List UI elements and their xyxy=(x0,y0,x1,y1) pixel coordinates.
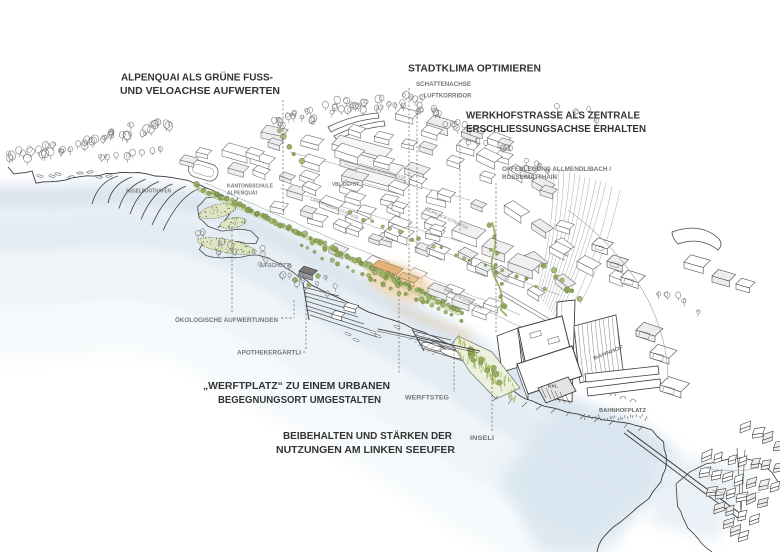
svg-text:OFFENLEGUNG ALLMENDLIBACH /: OFFENLEGUNG ALLMENDLIBACH / xyxy=(502,166,611,173)
svg-text:VBL-DEPOT: VBL-DEPOT xyxy=(332,182,359,188)
svg-text:WERFTSTEG: WERFTSTEG xyxy=(405,395,449,402)
svg-text:SCHATTENACHSE: SCHATTENACHSE xyxy=(416,81,472,88)
svg-text:STADTKLIMA OPTIMIEREN: STADTKLIMA OPTIMIEREN xyxy=(408,63,541,75)
svg-text:ERSCHLIESSUNGSACHSE ERHALTEN: ERSCHLIESSUNGSACHSE ERHALTEN xyxy=(466,123,646,135)
svg-text:INSELI: INSELI xyxy=(470,435,494,442)
svg-text:RÖSSLIMATTHAIN: RÖSSLIMATTHAIN xyxy=(502,172,557,181)
svg-text:UFSCHÖTTI: UFSCHÖTTI xyxy=(261,262,292,269)
svg-text:BAHNHOFPLATZ: BAHNHOFPLATZ xyxy=(599,408,646,414)
svg-text:UND VELOACHSE AUFWERTEN: UND VELOACHSE AUFWERTEN xyxy=(120,85,280,97)
svg-text:„WERFTPLATZ“ ZU EINEM URBANEN: „WERFTPLATZ“ ZU EINEM URBANEN xyxy=(203,380,390,392)
svg-text:BEIBEHALTEN UND STÄRKEN DER: BEIBEHALTEN UND STÄRKEN DER xyxy=(283,429,452,442)
svg-text:KANTONSSCHULE: KANTONSSCHULE xyxy=(227,184,274,190)
svg-text:LUFTKORRIDOR: LUFTKORRIDOR xyxy=(424,93,472,100)
svg-text:KKL: KKL xyxy=(548,384,558,390)
svg-text:WERKHOFSTRASSE ALS ZENTRALE: WERKHOFSTRASSE ALS ZENTRALE xyxy=(466,110,640,122)
svg-text:ÖKOLOGISCHE AUFWERTUNGEN: ÖKOLOGISCHE AUFWERTUNGEN xyxy=(175,315,278,324)
svg-text:NUTZUNGEN AM LINKEN SEEUFER: NUTZUNGEN AM LINKEN SEEUFER xyxy=(276,444,455,456)
svg-text:SEGELBOOTHAFEN: SEGELBOOTHAFEN xyxy=(126,189,171,195)
svg-text:APOTHEKERGÄRTLI: APOTHEKERGÄRTLI xyxy=(237,349,301,357)
svg-text:BEGEGNUNGSORT UMGESTALTEN: BEGEGNUNGSORT UMGESTALTEN xyxy=(218,394,381,406)
svg-text:ALPENQUAI: ALPENQUAI xyxy=(227,191,258,197)
svg-text:ALPENQUAI ALS GRÜNE FUSS-: ALPENQUAI ALS GRÜNE FUSS- xyxy=(121,71,273,84)
